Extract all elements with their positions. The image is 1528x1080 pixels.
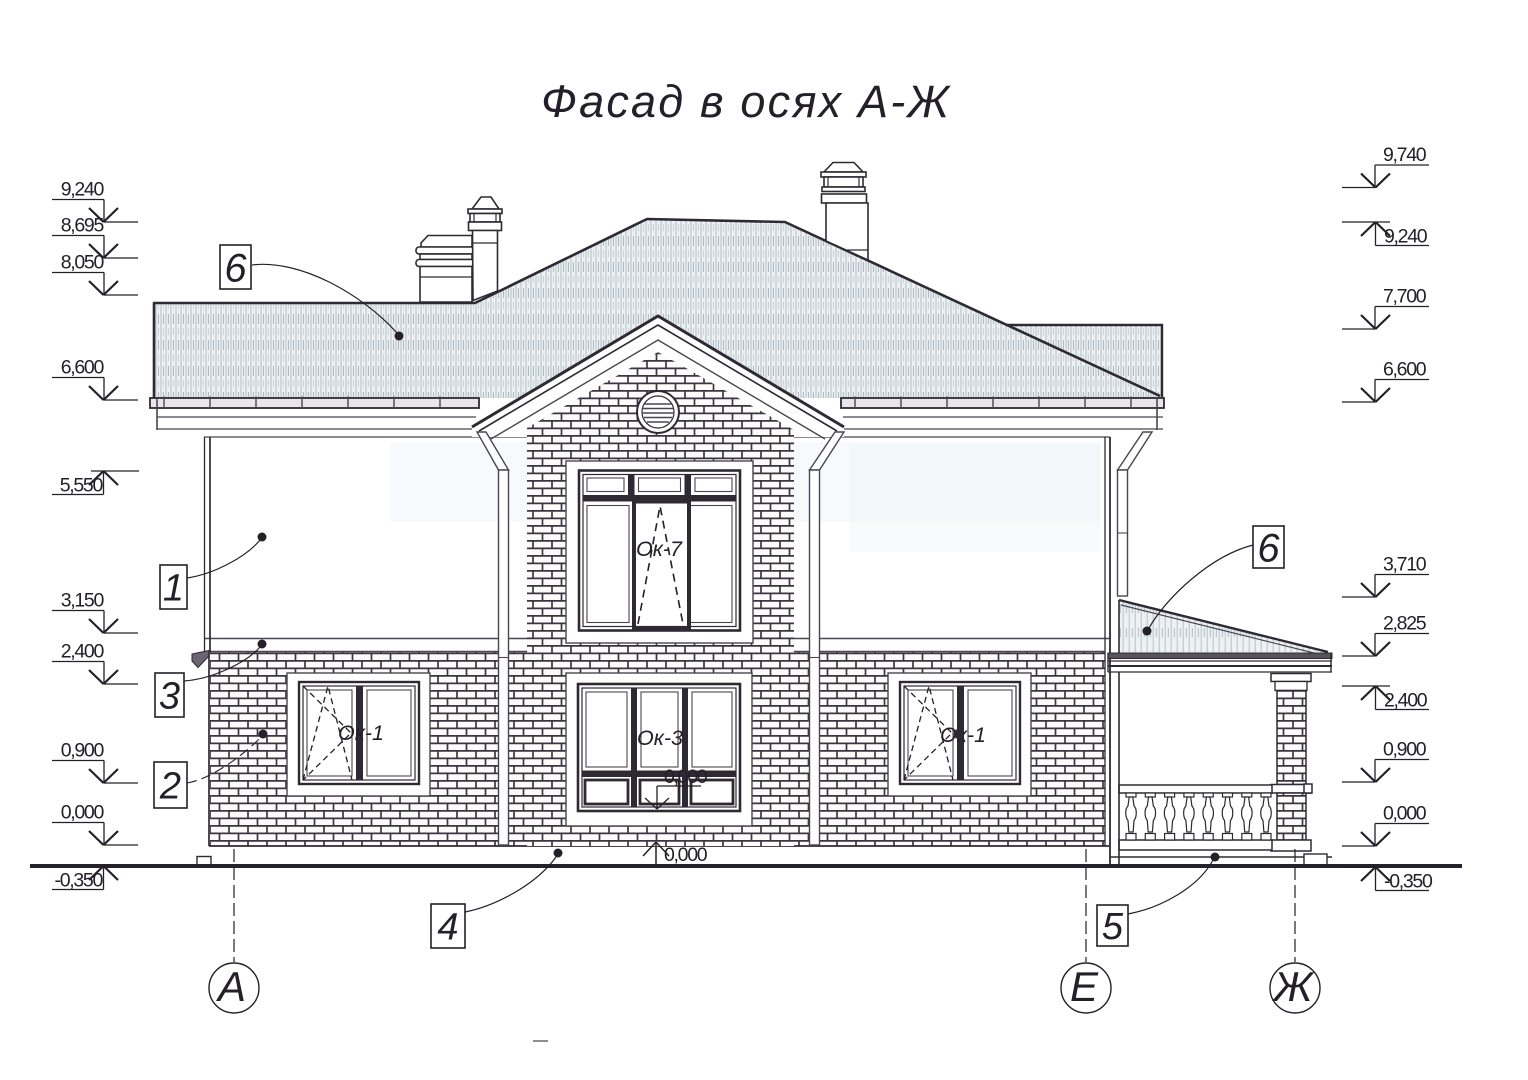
svg-text:1: 1 — [163, 568, 184, 610]
svg-text:0,000: 0,000 — [664, 844, 708, 866]
svg-text:6: 6 — [224, 246, 247, 290]
svg-text:2,400: 2,400 — [1384, 690, 1428, 712]
svg-text:0,900: 0,900 — [1383, 739, 1427, 761]
svg-text:А: А — [215, 963, 246, 1010]
svg-text:9,240: 9,240 — [61, 179, 105, 201]
svg-text:0,000: 0,000 — [1383, 803, 1427, 825]
svg-text:3: 3 — [159, 676, 180, 718]
svg-text:5: 5 — [1102, 906, 1124, 948]
svg-text:9,740: 9,740 — [1383, 144, 1427, 166]
svg-text:0,000: 0,000 — [61, 802, 105, 824]
svg-text:Фасад в осях А-Ж: Фасад в осях А-Ж — [541, 76, 951, 127]
svg-text:3,710: 3,710 — [1383, 554, 1427, 576]
svg-text:4: 4 — [437, 907, 458, 949]
svg-text:6,600: 6,600 — [1383, 359, 1427, 381]
svg-text:3,150: 3,150 — [61, 590, 105, 612]
svg-text:2,825: 2,825 — [1383, 613, 1427, 635]
svg-text:9,240: 9,240 — [1384, 226, 1428, 248]
svg-text:7,700: 7,700 — [1383, 286, 1427, 308]
svg-text:Ок-3: Ок-3 — [637, 726, 683, 750]
svg-text:-0,350: -0,350 — [1384, 871, 1433, 893]
svg-text:6: 6 — [1257, 526, 1280, 570]
svg-text:-0,350: -0,350 — [55, 870, 104, 892]
svg-text:8,050: 8,050 — [61, 252, 105, 274]
svg-text:Ок-1: Ок-1 — [338, 721, 384, 745]
svg-text:Ок-7: Ок-7 — [636, 537, 683, 561]
svg-text:0,900: 0,900 — [61, 740, 105, 762]
svg-text:Ж: Ж — [1272, 963, 1315, 1010]
svg-text:2: 2 — [159, 766, 181, 808]
svg-text:6,600: 6,600 — [61, 357, 105, 379]
svg-text:8,695: 8,695 — [61, 215, 105, 237]
svg-text:Е: Е — [1070, 963, 1099, 1010]
svg-text:5,550: 5,550 — [60, 475, 104, 497]
svg-text:0,000: 0,000 — [664, 766, 708, 788]
svg-text:2,400: 2,400 — [61, 641, 105, 663]
